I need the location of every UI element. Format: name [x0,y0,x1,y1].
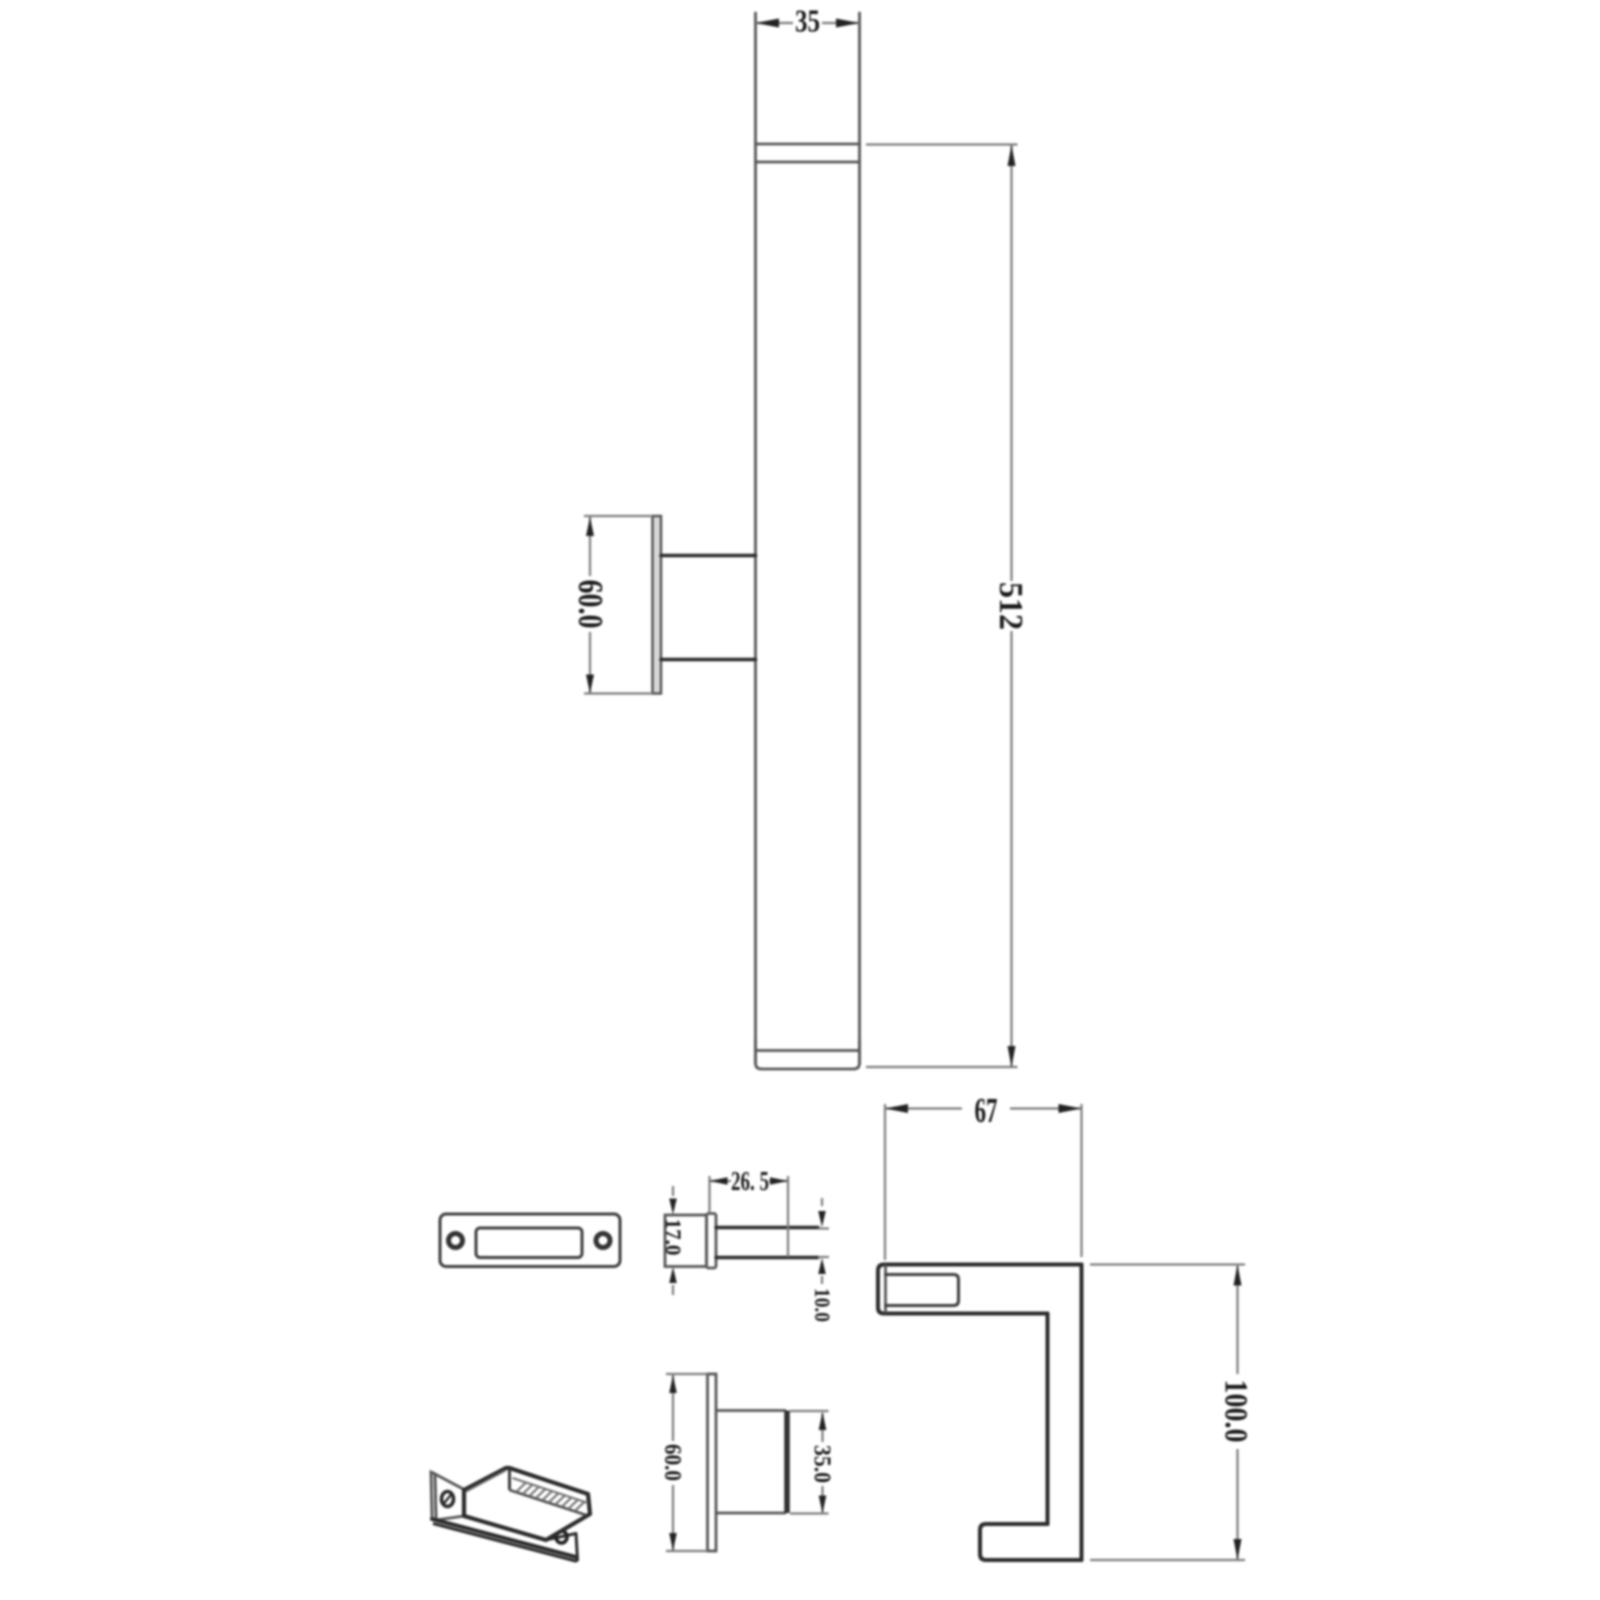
svg-text:17.0: 17.0 [661,1219,686,1256]
svg-text:35.0: 35.0 [809,1445,835,1483]
svg-text:60.0: 60.0 [571,580,610,629]
svg-text:60.0: 60.0 [659,1444,685,1481]
svg-text:67: 67 [975,1091,998,1130]
svg-text:10.0: 10.0 [810,1288,835,1322]
svg-text:35: 35 [795,3,820,39]
svg-text:100.0: 100.0 [1218,1380,1254,1443]
svg-text:26. 5: 26. 5 [731,1166,769,1196]
svg-text:512: 512 [992,582,1029,630]
